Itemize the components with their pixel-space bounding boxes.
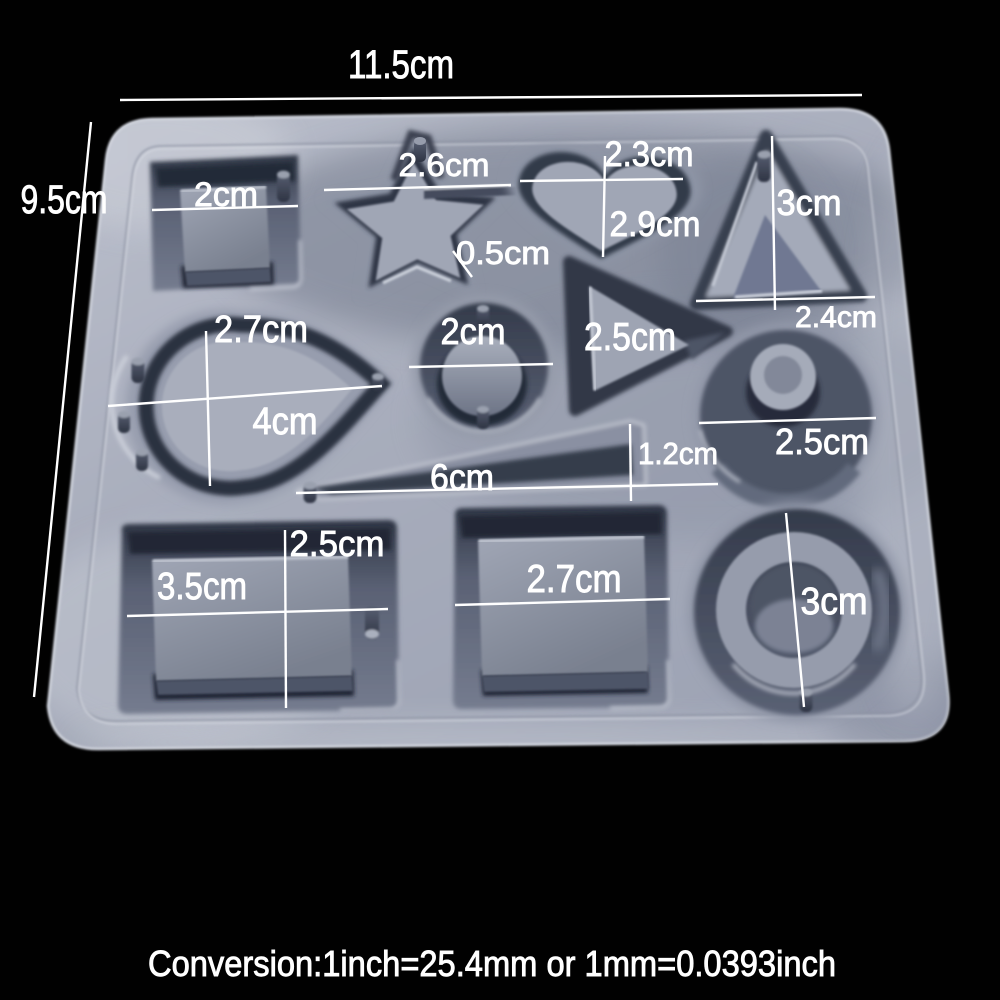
svg-text:2.5cm: 2.5cm <box>775 421 869 462</box>
svg-text:2.7cm: 2.7cm <box>527 558 622 601</box>
svg-text:2.5cm: 2.5cm <box>584 316 676 359</box>
svg-text:2cm: 2cm <box>194 176 258 214</box>
svg-text:2.6cm: 2.6cm <box>399 147 490 183</box>
svg-text:2.3cm: 2.3cm <box>605 135 694 174</box>
svg-text:3.5cm: 3.5cm <box>157 566 247 608</box>
svg-text:3cm: 3cm <box>801 581 868 623</box>
svg-text:2.7cm: 2.7cm <box>214 309 308 351</box>
svg-text:11.5cm: 11.5cm <box>348 43 454 87</box>
svg-text:6cm: 6cm <box>430 457 494 498</box>
svg-text:Conversion:1inch=25.4mm or 1mm: Conversion:1inch=25.4mm or 1mm=0.0393inc… <box>148 943 836 984</box>
svg-text:1.2cm: 1.2cm <box>638 436 718 471</box>
svg-text:2.9cm: 2.9cm <box>610 205 701 244</box>
svg-text:9.5cm: 9.5cm <box>21 178 108 222</box>
svg-text:4cm: 4cm <box>253 401 318 443</box>
svg-text:3cm: 3cm <box>777 182 842 223</box>
svg-text:2cm: 2cm <box>441 311 506 352</box>
svg-text:0.5cm: 0.5cm <box>456 235 550 271</box>
svg-text:2.4cm: 2.4cm <box>795 301 877 334</box>
svg-text:2.5cm: 2.5cm <box>290 523 385 564</box>
